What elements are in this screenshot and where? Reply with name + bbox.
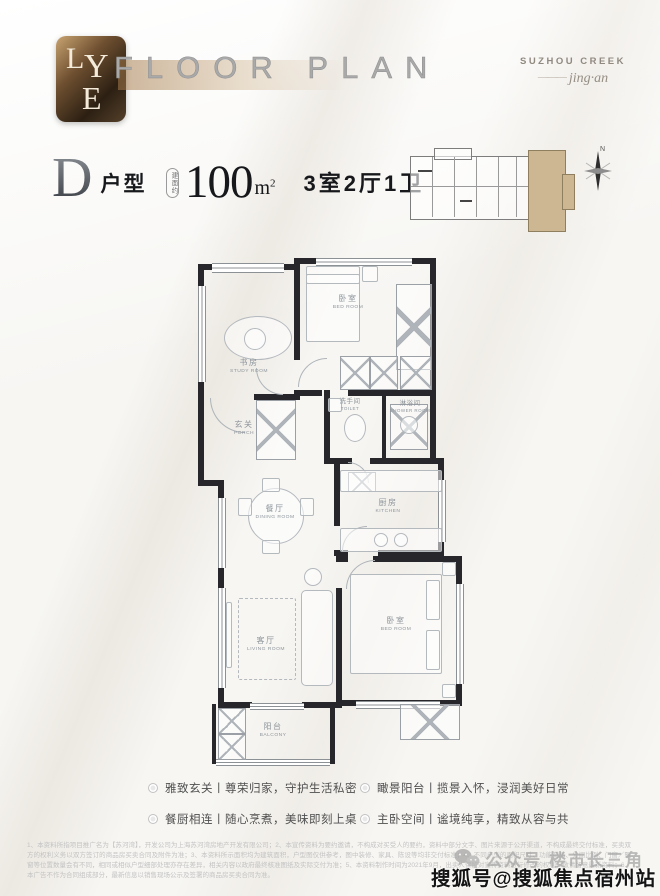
feature-text: 餐厨相连丨随心烹煮，美味即刻上桌 xyxy=(165,811,357,827)
door-arc xyxy=(256,368,283,395)
logo-letter: L xyxy=(66,42,84,76)
room-name-en: KITCHEN xyxy=(345,508,431,514)
bed-pillow xyxy=(426,630,440,670)
key-plan-wall-mark xyxy=(460,200,472,202)
key-plan-line xyxy=(411,186,531,187)
key-plan-line xyxy=(454,157,455,217)
key-plan-line xyxy=(516,157,517,217)
logo-letter: E xyxy=(82,80,102,117)
wall-segment xyxy=(336,556,348,562)
sofa xyxy=(301,590,333,686)
dining-chair xyxy=(300,498,314,516)
feature-bullet-icon xyxy=(360,814,370,824)
feature-column: 瞰景阳台丨揽景入怀，浸润美好日常 主卧空间丨谧境纯享，精致从容与共 xyxy=(360,780,569,842)
kitchen-counter xyxy=(340,470,442,492)
nightstand xyxy=(362,266,378,282)
bed-pillow xyxy=(306,274,360,284)
shower-drain xyxy=(400,416,418,434)
door-arc xyxy=(210,398,245,433)
floor-plan-page: L Y E FLOOR PLAN SUZHOU CREEK ———jing·an… xyxy=(0,0,660,896)
nightstand xyxy=(442,684,456,698)
page-title: FLOOR PLAN xyxy=(114,50,440,86)
feature-item: 餐厨相连丨随心烹煮，美味即刻上桌 xyxy=(148,811,357,827)
area-value: 100 xyxy=(185,160,253,204)
feature-item: 主卧空间丨谧境纯享，精致从容与共 xyxy=(360,811,569,827)
unit-spec: 3室2厅1卫 xyxy=(304,166,425,198)
closet-hatch xyxy=(370,356,398,390)
room-name-cn: 厨房 xyxy=(340,498,436,508)
balcony-unit-hatch xyxy=(218,734,246,760)
wall-segment xyxy=(370,458,444,464)
nightstand xyxy=(442,562,456,576)
door-arc xyxy=(298,358,327,387)
feature-column: 雅致玄关丨尊荣归家，守护生活私密 餐厨相连丨随心烹煮，美味即刻上桌 xyxy=(148,780,357,842)
closet-hatch xyxy=(400,356,432,390)
window-segment xyxy=(198,286,206,382)
window-segment xyxy=(456,584,464,684)
project-sub-text: jing·an xyxy=(569,71,608,86)
project-subname: ———jing·an xyxy=(498,71,648,87)
dining-chair xyxy=(262,478,280,492)
main-floor-plan: 书房 STUDY ROOM 卧室 BED ROOM 玄关 PORCH 洗手间 T… xyxy=(198,258,464,766)
room-name-cn: 书房 xyxy=(205,358,293,368)
area-tag: 建面约 xyxy=(166,168,179,199)
window-segment xyxy=(218,498,226,568)
room-label-kitchen: 厨房 KITCHEN xyxy=(340,498,436,515)
wall-segment xyxy=(294,390,322,396)
kitchen-counter xyxy=(340,528,442,552)
window-segment xyxy=(212,263,284,273)
key-plan-wing xyxy=(434,148,472,160)
porch-cabinet-hatch xyxy=(256,400,296,460)
closet-hatch xyxy=(340,356,370,390)
feature-text: 雅致玄关丨尊荣归家，守护生活私密 xyxy=(165,780,357,796)
area-unit-sup: 2 xyxy=(270,177,276,189)
unit-letter: D xyxy=(52,152,92,204)
feature-item: 雅致玄关丨尊荣归家，守护生活私密 xyxy=(148,780,357,796)
stove-burner xyxy=(394,533,408,547)
key-plan-wall-mark xyxy=(418,170,432,172)
project-brand: SUZHOU CREEK ———jing·an xyxy=(498,56,648,87)
feature-bullet-icon xyxy=(148,783,158,793)
wall-segment xyxy=(212,704,216,764)
window-segment xyxy=(316,258,412,266)
key-plan-line xyxy=(432,157,433,217)
stove-burner xyxy=(374,533,388,547)
dining-chair xyxy=(262,540,280,554)
key-plan-unit-highlight xyxy=(528,150,566,232)
ac-platform-hatch xyxy=(400,704,460,740)
area-unit-m: m xyxy=(254,177,270,199)
floor-lamp xyxy=(304,568,322,586)
wall-segment xyxy=(336,588,342,706)
compass-star xyxy=(582,150,614,192)
project-name: SUZHOU CREEK xyxy=(498,56,648,67)
feature-text: 瞰景阳台丨揽景入怀，浸润美好日常 xyxy=(377,780,569,796)
compass-north-label: N xyxy=(600,146,605,153)
watermark-sohu: 搜狐号@搜狐焦点宿州站 xyxy=(431,862,656,891)
window-segment xyxy=(216,759,330,766)
feature-bullet-icon xyxy=(360,783,370,793)
unit-type-label: 户型 xyxy=(100,168,146,198)
brand-dash: ——— xyxy=(538,71,565,83)
living-rug xyxy=(238,598,296,680)
wall-segment xyxy=(348,390,436,396)
key-plan-unit-step xyxy=(562,174,575,210)
compass-icon: N xyxy=(582,150,614,196)
dining-chair xyxy=(238,498,252,516)
wall-segment xyxy=(294,262,300,360)
area-unit: m2 xyxy=(254,177,275,200)
feature-bullet-icon xyxy=(148,814,158,824)
sliding-door xyxy=(250,703,304,710)
tv-console xyxy=(226,602,232,668)
balcony-unit-hatch xyxy=(218,708,246,734)
sink-fixture xyxy=(328,398,342,412)
window-segment xyxy=(218,588,226,688)
feature-item: 瞰景阳台丨揽景入怀，浸润美好日常 xyxy=(360,780,569,796)
wall-segment xyxy=(330,704,335,764)
dining-table xyxy=(248,488,304,544)
bed-pillow xyxy=(426,580,440,620)
key-plan-line xyxy=(476,157,477,217)
key-plan xyxy=(410,148,582,234)
toilet-fixture xyxy=(344,414,366,442)
unit-title: D 户型 建面约 100 m2 3室2厅1卫 xyxy=(52,146,424,204)
wall-segment xyxy=(382,396,386,458)
wall-segment xyxy=(373,556,443,562)
feature-text: 主卧空间丨谧境纯享，精致从容与共 xyxy=(377,811,569,827)
key-plan-line xyxy=(498,157,499,217)
study-chair xyxy=(244,328,266,350)
